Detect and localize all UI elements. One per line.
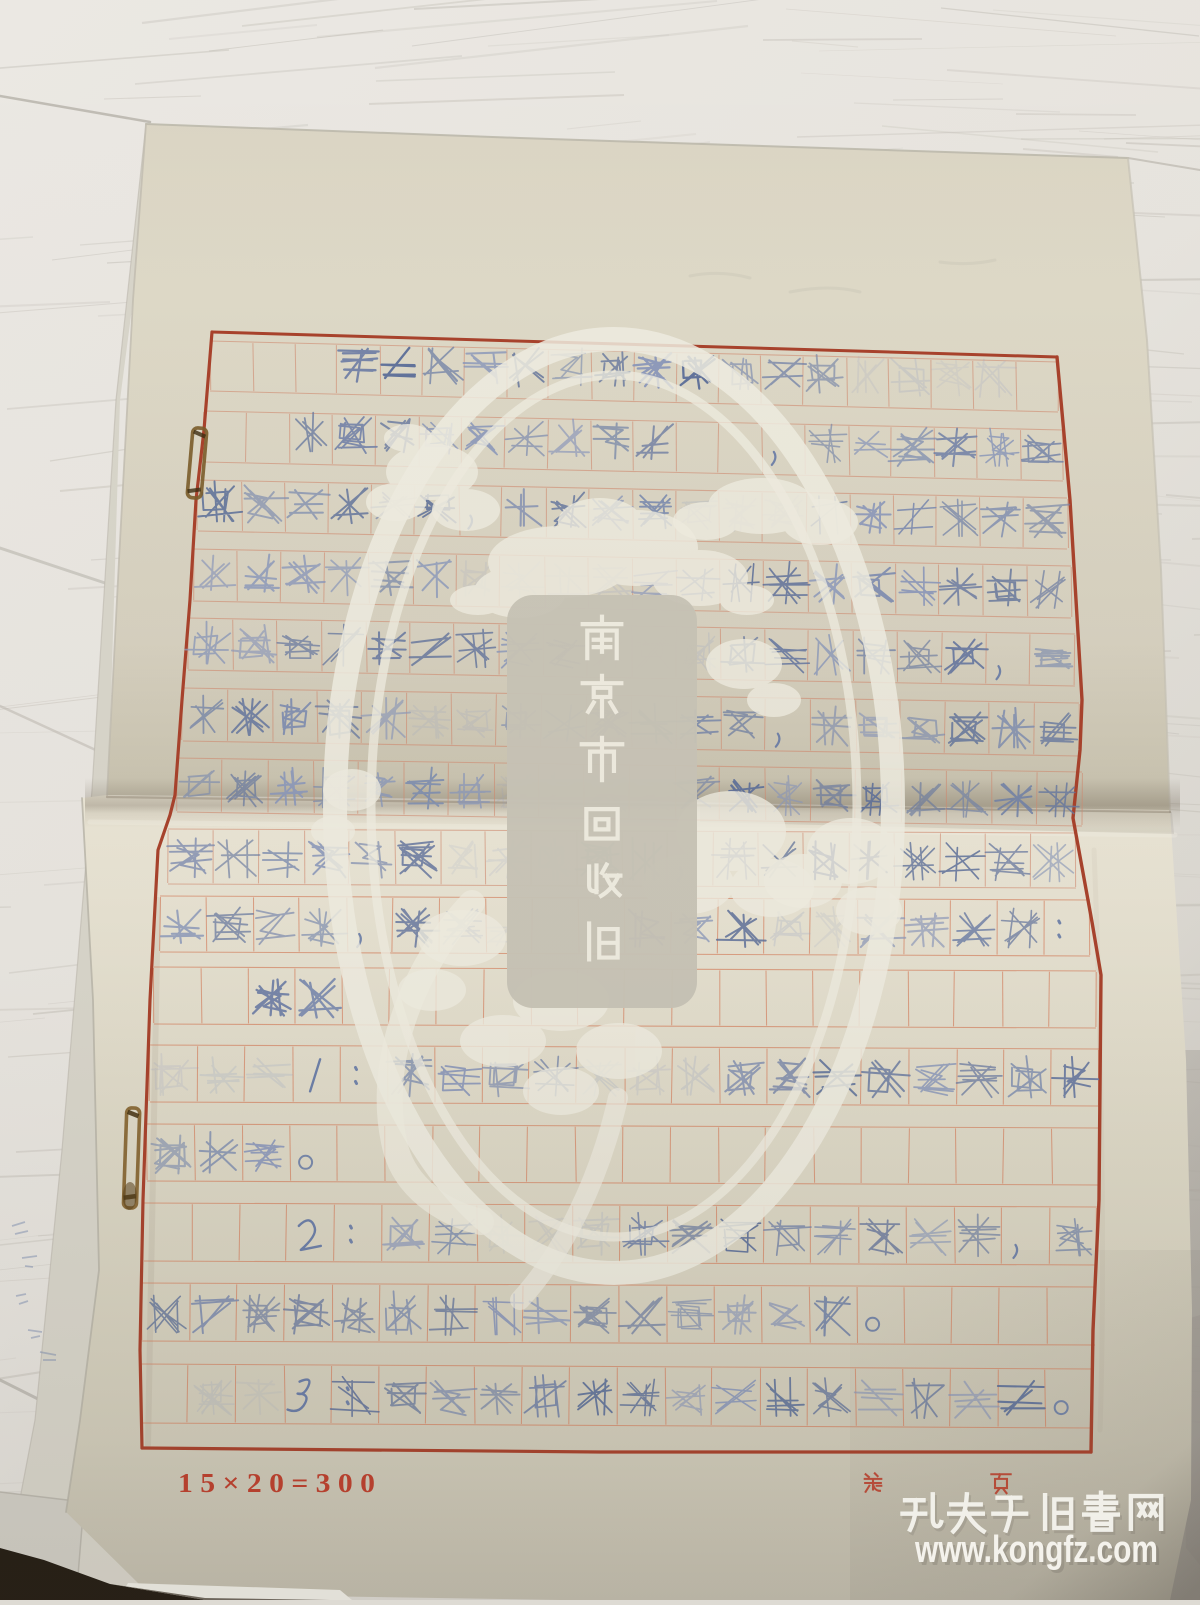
svg-text:www.kongfz.com: www.kongfz.com [914, 1529, 1158, 1571]
svg-text:1 5 × 2 0 = 3 0 0: 1 5 × 2 0 = 3 0 0 [178, 1468, 375, 1498]
